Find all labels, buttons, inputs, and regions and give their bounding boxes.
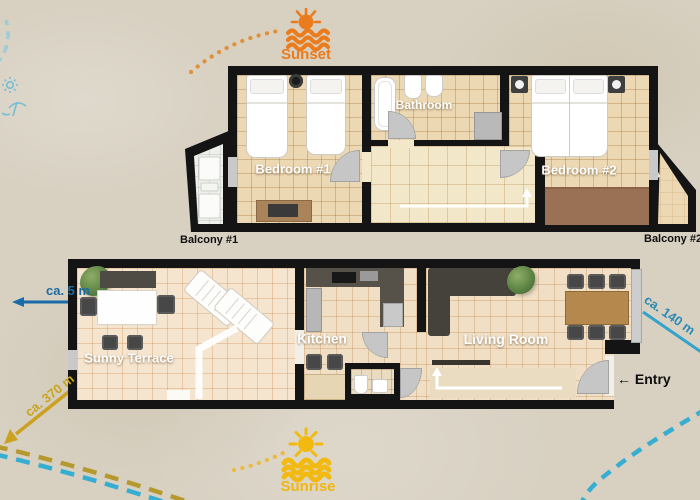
sofa-chaise	[428, 268, 450, 336]
umbrella-doodle-icon	[2, 102, 26, 116]
balcony1-door-gap	[228, 157, 237, 187]
dining-chair	[567, 325, 584, 340]
sunrise-dotted-arc	[234, 453, 283, 470]
dining-chair	[609, 274, 626, 289]
bar-stool	[306, 354, 322, 370]
sunset-label: Sunset	[281, 46, 331, 63]
fridge	[306, 288, 322, 332]
stair-hall-rug	[430, 368, 576, 398]
ceiling-fixture-icon	[289, 74, 303, 88]
door-mat	[167, 390, 190, 400]
single-bed	[246, 75, 288, 158]
lower-floor-unit	[68, 259, 640, 409]
upper-floor-unit	[228, 66, 658, 232]
shoreline-sand-dash	[0, 446, 200, 500]
balcony-table	[201, 183, 218, 191]
entry-text: Entry	[635, 371, 671, 387]
sunset-icon	[288, 9, 328, 50]
dining-chair	[588, 274, 605, 289]
bedroom2-label: Bedroom #2	[541, 163, 616, 178]
single-bed	[306, 75, 346, 155]
beach-distance-label: ca. 5 m	[46, 283, 90, 298]
bathroom-label: Bathroom	[396, 98, 453, 112]
toilet	[354, 375, 368, 394]
cooktop	[332, 272, 356, 283]
balcony2-door-gap	[649, 150, 658, 180]
bidet	[425, 75, 443, 97]
terrace-chair	[80, 297, 97, 316]
bedroom1-door-gap	[362, 152, 371, 182]
dining-chair	[609, 325, 626, 340]
terrace-chair	[157, 295, 175, 314]
terrace-chair	[127, 335, 143, 350]
shoreline-sea-dash	[0, 454, 194, 500]
bathroom-door-gap	[388, 140, 414, 148]
right-distance-label: ca. 140 m	[641, 292, 698, 338]
nightstand	[608, 76, 625, 93]
appliance	[383, 303, 403, 327]
wall	[535, 150, 545, 223]
balcony-chair	[199, 157, 220, 180]
wc-room	[345, 363, 400, 400]
bedroom1-label: Bedroom #1	[255, 162, 330, 177]
dining-chair	[588, 325, 605, 340]
wall	[417, 268, 426, 332]
sunrise-icon	[284, 429, 329, 480]
path-dash-top-left	[0, 20, 8, 64]
bedroom2-rug	[545, 187, 649, 225]
tv-bench	[432, 360, 490, 365]
double-bed-left	[531, 75, 570, 157]
balcony-1	[185, 130, 231, 232]
nightstand	[511, 76, 528, 93]
entry-label: ← Entry	[617, 371, 671, 387]
double-bed-right	[569, 75, 608, 157]
sun-doodle-icon	[2, 77, 18, 93]
tv	[268, 204, 298, 217]
terrace-table	[97, 290, 157, 325]
terrace-chair	[102, 335, 118, 350]
bench	[100, 271, 156, 288]
dining-chair	[567, 274, 584, 289]
path-dash-bottom-right	[581, 409, 700, 500]
balcony1-label: Balcony #1	[180, 234, 238, 246]
toilet	[404, 75, 422, 99]
living-room-label: Living Room	[464, 331, 549, 347]
window	[631, 269, 642, 343]
sunrise-label: Sunrise	[280, 478, 335, 495]
entry-arrow-icon: ←	[617, 371, 631, 387]
bar-stool	[327, 354, 343, 370]
terrace-side-window	[68, 350, 77, 370]
sink	[360, 271, 378, 281]
kitchen-label: Kitchen	[297, 332, 347, 347]
shower	[474, 112, 502, 140]
balcony-chair	[199, 194, 220, 218]
wc-sink	[372, 379, 388, 393]
dining-table	[565, 291, 629, 325]
dresser	[256, 200, 312, 222]
balcony2-label: Balcony #2	[644, 233, 700, 245]
floorplan-scene: Sunset Sunrise Bedroom #1 Bathroom Bedro…	[0, 0, 700, 500]
terrace-label: Sunny Terrace	[84, 351, 173, 366]
